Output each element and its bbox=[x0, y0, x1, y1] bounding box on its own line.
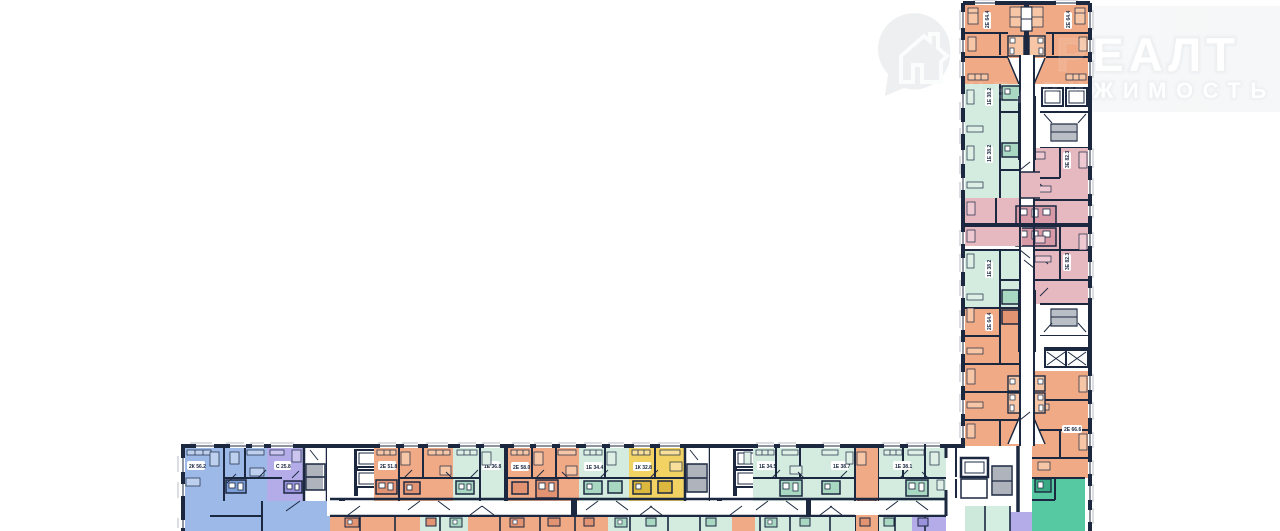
svg-text:2Е 64.4: 2Е 64.4 bbox=[987, 313, 993, 330]
svg-text:1Е 38.2: 1Е 38.2 bbox=[987, 260, 993, 277]
svg-text:2Е 66.6: 2Е 66.6 bbox=[1064, 427, 1081, 433]
svg-text:1Е 38.2: 1Е 38.2 bbox=[987, 145, 993, 162]
svg-text:3Е 82.3: 3Е 82.3 bbox=[1065, 253, 1071, 270]
svg-text:С 25.8: С 25.8 bbox=[276, 464, 291, 470]
svg-text:2Е 58.0: 2Е 58.0 bbox=[513, 465, 530, 471]
svg-text:1Е 38.1: 1Е 38.1 bbox=[895, 464, 912, 470]
svg-text:1Е 34.4: 1Е 34.4 bbox=[586, 465, 603, 471]
svg-text:1Е 38.7: 1Е 38.7 bbox=[833, 464, 850, 470]
svg-text:3Е 82.3: 3Е 82.3 bbox=[1065, 151, 1071, 168]
svg-text:2Е 51.8: 2Е 51.8 bbox=[380, 464, 397, 470]
svg-text:2К 56.2: 2К 56.2 bbox=[189, 464, 206, 470]
svg-text:2Е 64.4: 2Е 64.4 bbox=[1066, 11, 1072, 28]
svg-text:1Е 34.5: 1Е 34.5 bbox=[759, 464, 776, 470]
svg-text:1К 32.8: 1К 32.8 bbox=[635, 465, 652, 471]
svg-text:2Е 64.4: 2Е 64.4 bbox=[985, 11, 991, 28]
